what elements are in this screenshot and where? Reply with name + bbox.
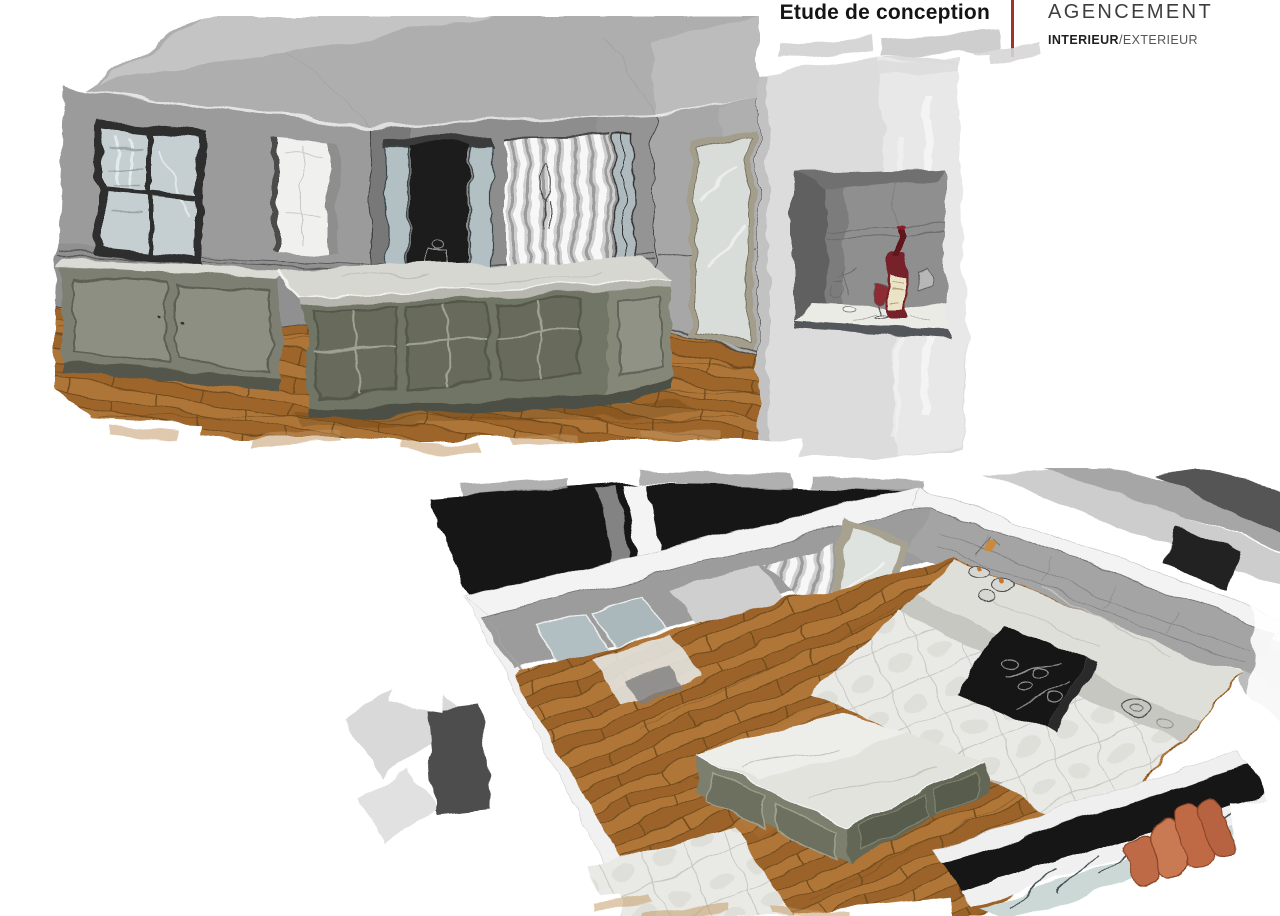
bright-doorway	[272, 137, 338, 256]
kitchen-island	[276, 258, 672, 419]
brand-block: AGENCEMENT INTERIEUR/EXTERIEUR	[1048, 1, 1213, 47]
brand-name: AGENCEMENT	[1048, 1, 1213, 24]
left-window	[96, 120, 204, 266]
sideboard-cabinet	[58, 258, 284, 390]
framed-mirror	[690, 132, 754, 350]
aerial-scene	[346, 468, 1280, 916]
figure-aerial-view	[340, 468, 1280, 916]
pass-through-opening	[792, 168, 946, 341]
figure-perspective-view	[40, 16, 1050, 468]
brand-tagline: INTERIEUR/EXTERIEUR	[1048, 33, 1213, 47]
dark-doorway	[384, 137, 492, 280]
perspective-scene	[40, 16, 1041, 468]
brand-tagline-rest: /EXTERIEUR	[1119, 33, 1198, 47]
brand-tagline-bold: INTERIEUR	[1048, 33, 1119, 47]
